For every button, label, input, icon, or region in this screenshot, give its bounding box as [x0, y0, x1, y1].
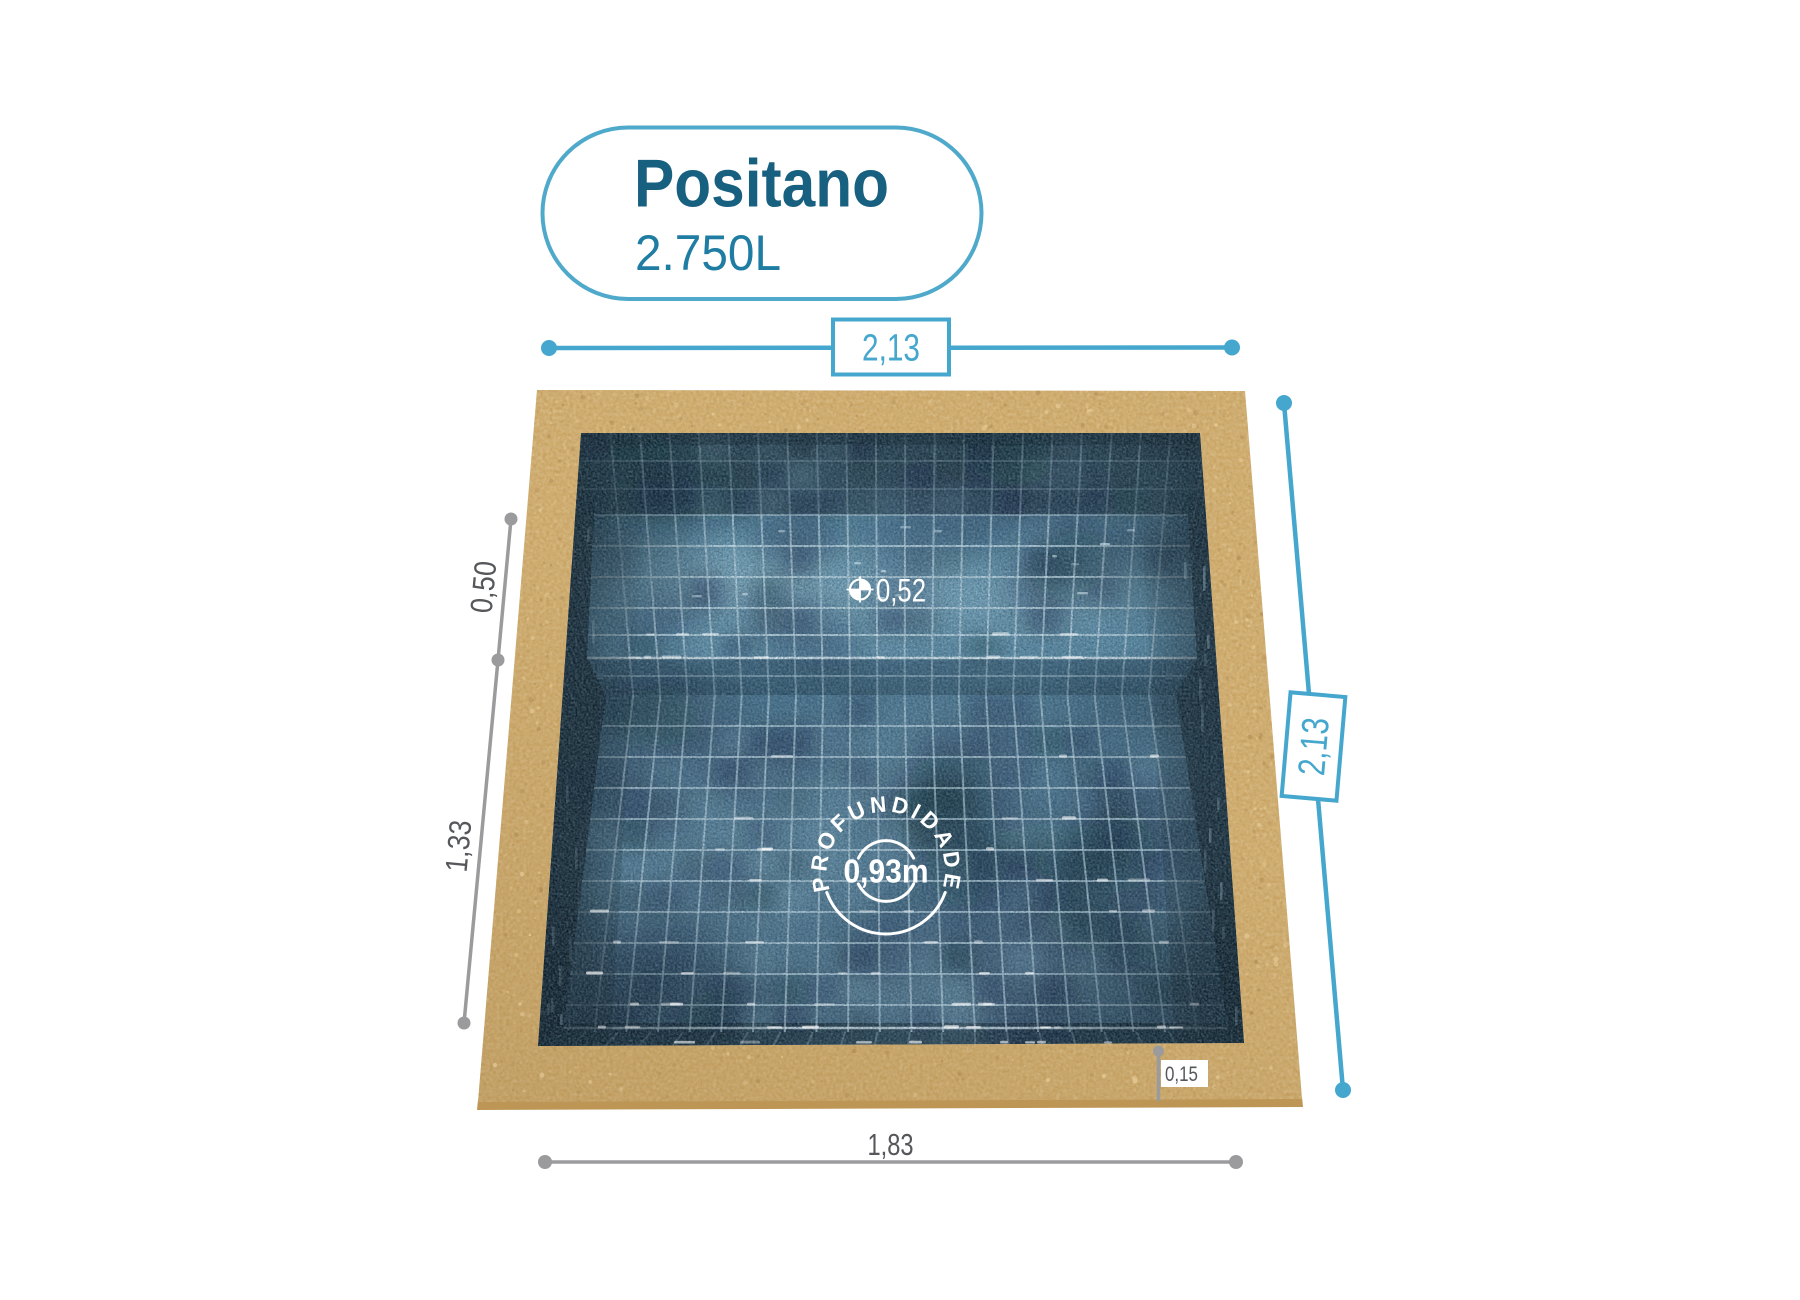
svg-text:2,13: 2,13: [862, 328, 920, 370]
svg-text:0,15: 0,15: [1165, 1062, 1198, 1086]
svg-text:0,50: 0,50: [464, 560, 504, 615]
svg-text:0,93m: 0,93m: [844, 854, 929, 891]
svg-text:Positano: Positano: [634, 147, 889, 222]
svg-text:1,83: 1,83: [868, 1127, 914, 1162]
svg-text:2,13: 2,13: [1291, 716, 1338, 777]
svg-text:1,33: 1,33: [439, 819, 479, 874]
svg-text:2.750L: 2.750L: [635, 224, 781, 281]
svg-text:0,52: 0,52: [876, 573, 926, 609]
